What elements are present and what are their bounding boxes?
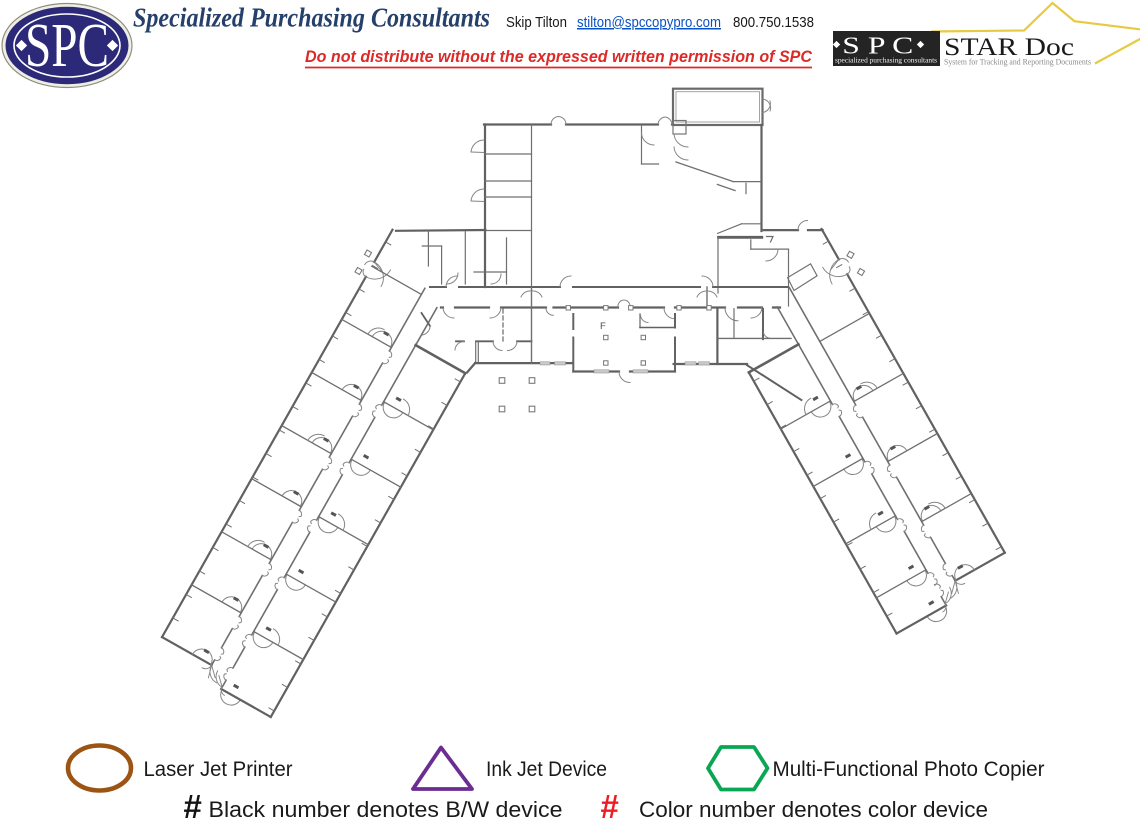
svg-text:#: # — [600, 788, 619, 825]
svg-text:System for Tracking and Report: System for Tracking and Reporting Docume… — [944, 57, 1091, 66]
svg-text:Skip Tilton: Skip Tilton — [506, 14, 567, 31]
svg-text:stilton@spccopypro.com: stilton@spccopypro.com — [577, 14, 721, 31]
svg-text:F: F — [600, 321, 606, 332]
svg-text:SPC: SPC — [25, 12, 109, 80]
svg-text:800.750.1538: 800.750.1538 — [733, 14, 814, 31]
svg-text:S P C: S P C — [842, 34, 913, 60]
svg-text:Specialized Purchasing Consult: Specialized Purchasing Consultants — [133, 2, 490, 33]
svg-text:Do not distribute without the: Do not distribute without the expressed … — [305, 48, 813, 66]
svg-text:Black number denotes B/W devic: Black number denotes B/W device — [209, 797, 563, 822]
svg-text:Color number denotes color dev: Color number denotes color device — [639, 797, 988, 822]
svg-text:#: # — [183, 788, 202, 825]
svg-text:Laser Jet Printer: Laser Jet Printer — [144, 757, 293, 781]
svg-text:specialized purchasing consult: specialized purchasing consultants — [835, 57, 937, 65]
svg-text:Ink Jet Device: Ink Jet Device — [486, 757, 607, 781]
svg-text:Multi-Functional Photo Copier: Multi-Functional Photo Copier — [773, 757, 1045, 781]
